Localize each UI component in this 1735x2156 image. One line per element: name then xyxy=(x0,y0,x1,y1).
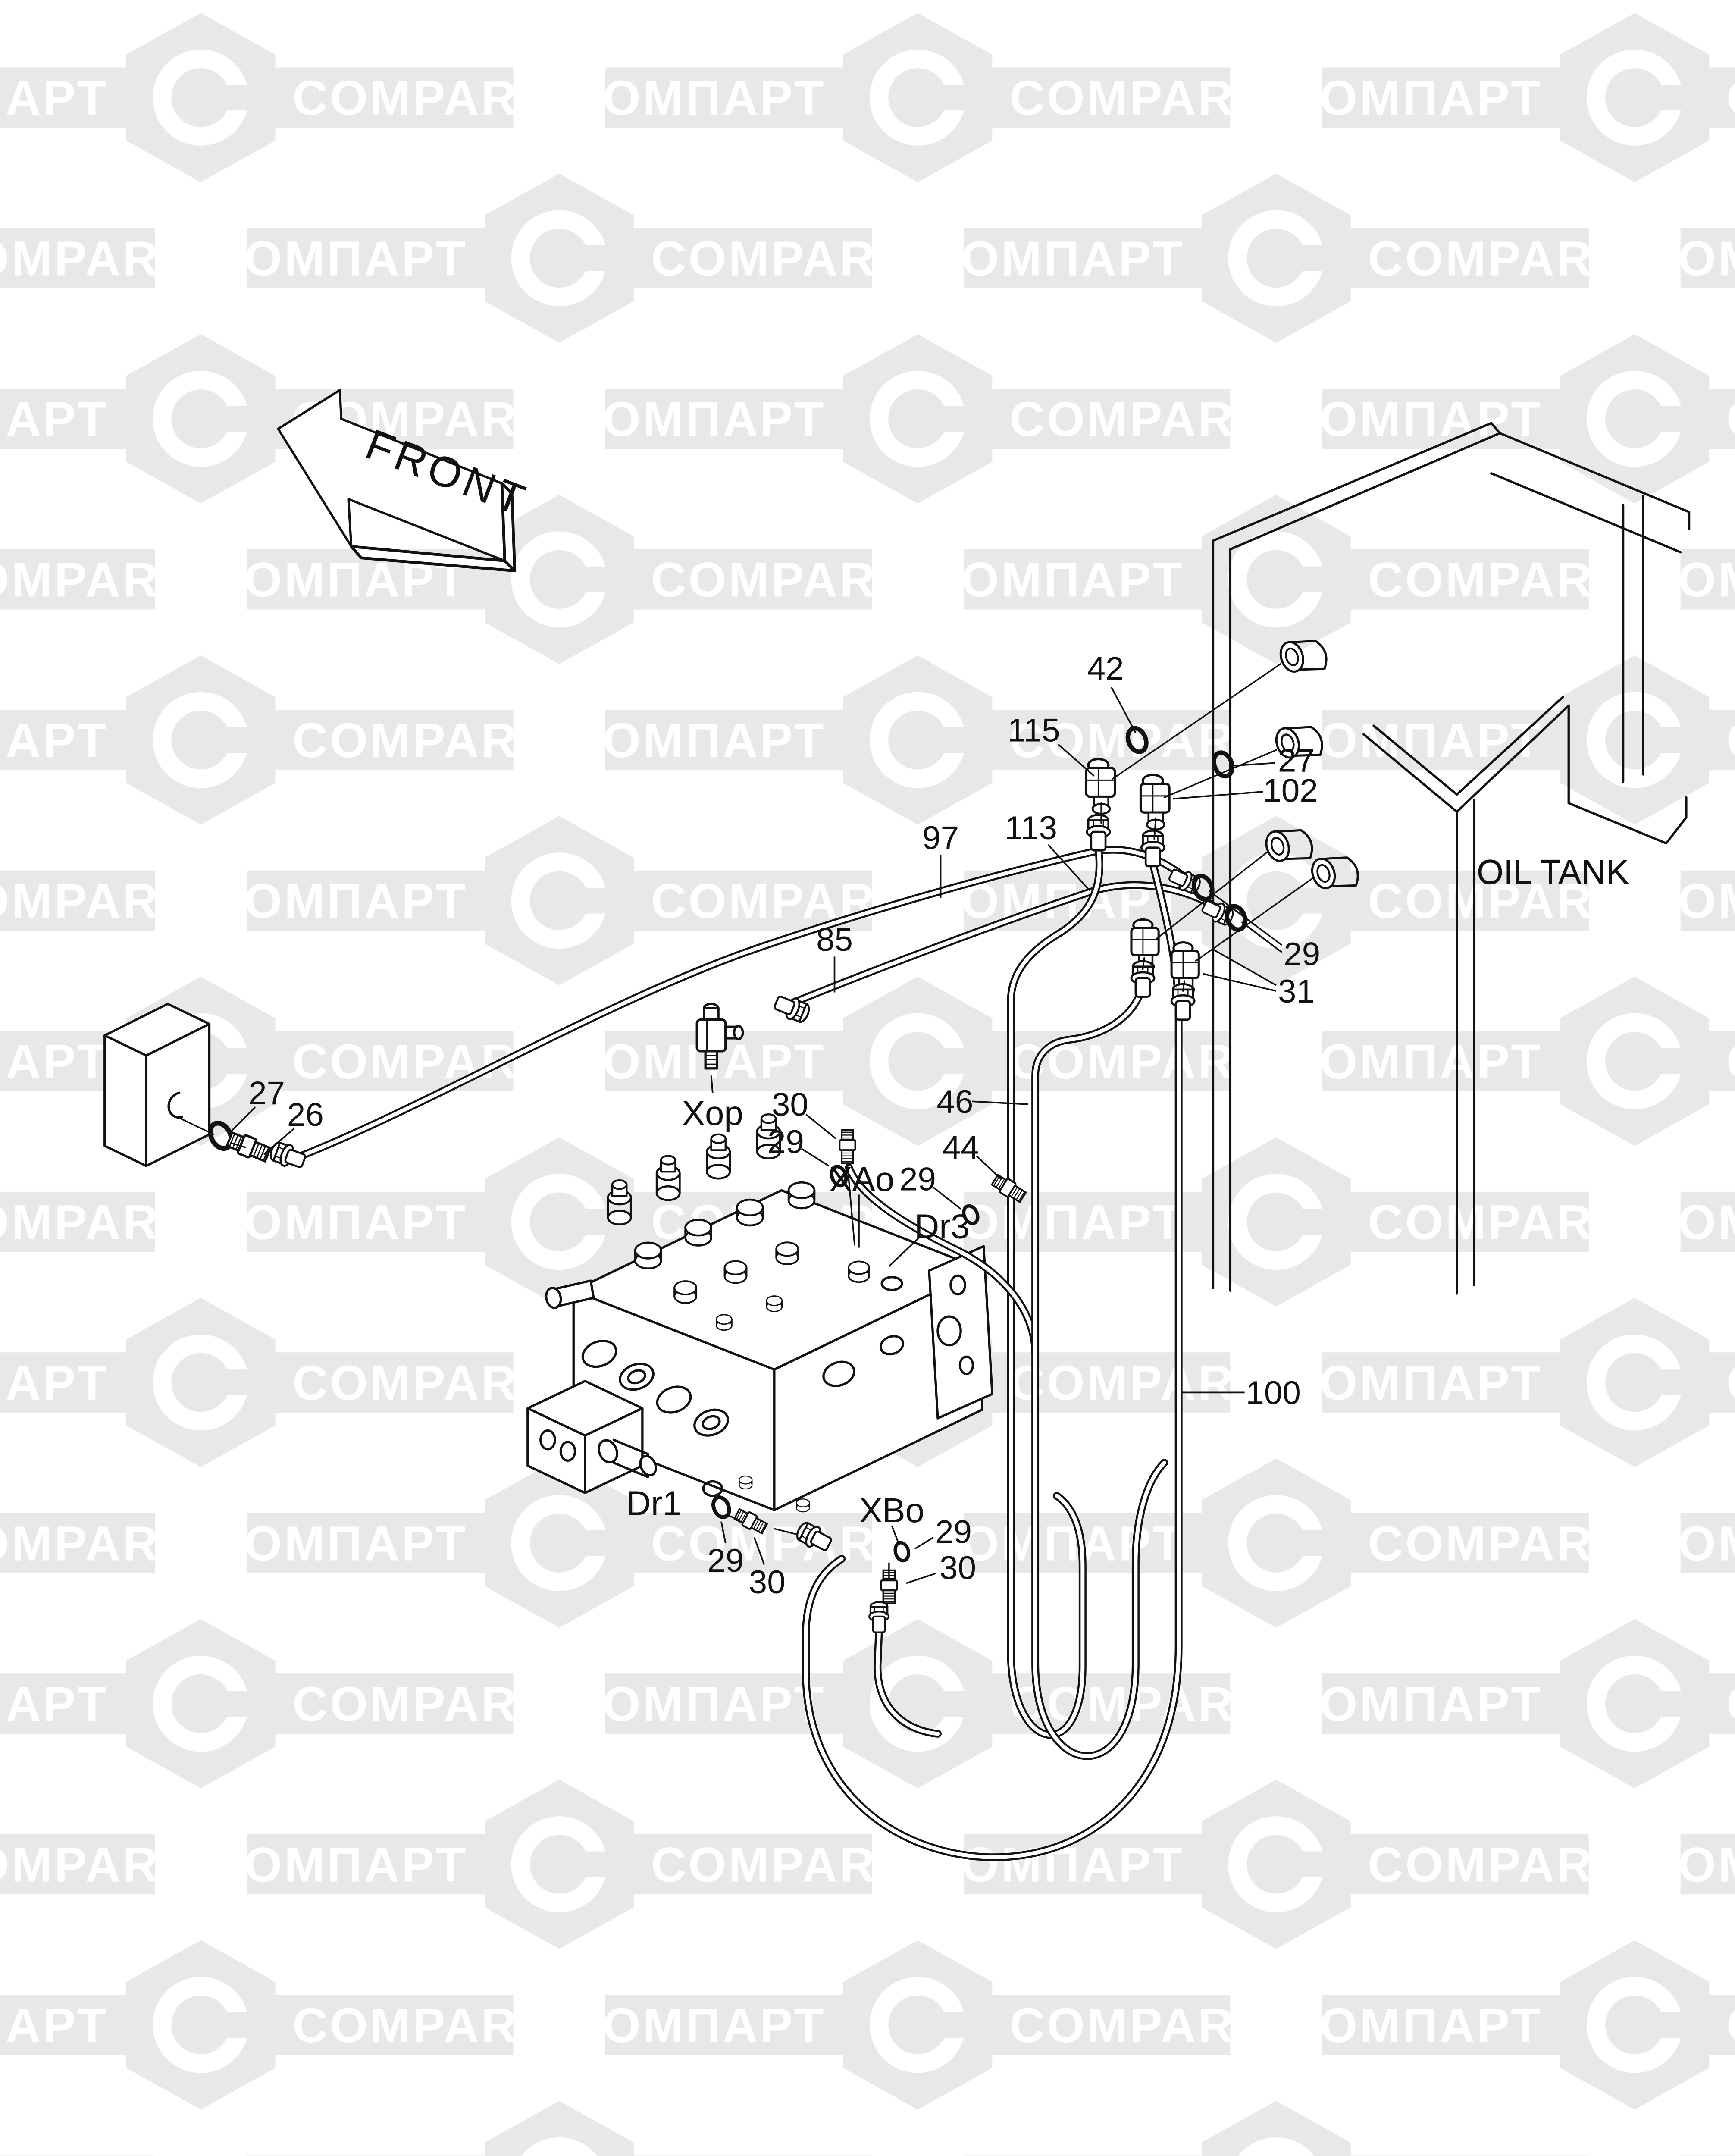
watermark-word-latin: COMPART xyxy=(1009,1034,1267,1089)
watermark-unit: КОМПАРТCOMPART xyxy=(0,1298,551,1467)
watermark-hexagon-icon xyxy=(126,13,276,182)
watermark-unit: КОМПАРТCOMPART xyxy=(212,816,909,985)
watermark-word-latin: COMPART xyxy=(0,1195,192,1250)
fitting-26 xyxy=(226,1130,272,1164)
watermark-word-cyrillic: КОМПАРТ xyxy=(1287,1356,1543,1410)
watermark-unit: КОМПАРТCOMPART xyxy=(0,1137,192,1306)
callout-label: 29 xyxy=(1284,936,1320,973)
callout-leader-line xyxy=(806,1114,836,1139)
watermark-hexagon-icon xyxy=(843,1940,992,2109)
watermark-word-cyrillic: КОМПАРТ xyxy=(1287,1034,1543,1089)
watermark-word-cyrillic: КОМПАРТ xyxy=(929,553,1184,607)
watermark-hexagon-icon xyxy=(1560,1619,1709,1788)
watermark-unit: КОМПАРТCOMPART xyxy=(0,1940,551,2109)
watermark-word-latin: COMPART xyxy=(1726,1034,1735,1089)
watermark-word-latin: COMPART xyxy=(1726,71,1735,125)
watermark-word-cyrillic: КОМПАРТ xyxy=(0,1356,109,1410)
callout-label: 30 xyxy=(749,1564,786,1601)
watermark-hexagon-icon xyxy=(485,174,634,343)
callout-label: 100 xyxy=(1246,1375,1301,1411)
watermark-word-cyrillic: КОМПАРТ xyxy=(1646,1516,1735,1570)
watermark-unit: КОМПАРТCOMPART xyxy=(212,1780,909,1949)
watermark-hexagon-icon xyxy=(843,334,992,503)
watermark-word-cyrillic: КОМПАРТ xyxy=(1646,1195,1735,1250)
watermark-unit: КОМПАРТCOMPART xyxy=(1646,1458,1735,1627)
watermark-unit: КОМПАРТCOMPART xyxy=(929,174,1626,343)
watermark-word-latin: COMPART xyxy=(651,1837,909,1892)
watermark-hexagon-icon xyxy=(126,1298,276,1467)
watermark-word-latin: COMPART xyxy=(292,1677,550,1731)
watermark-unit: КОМПАРТCOMPART xyxy=(0,2101,192,2156)
callout-label: 26 xyxy=(287,1097,324,1133)
watermark-word-latin: COMPART xyxy=(651,553,909,607)
watermark-word-latin: COMPART xyxy=(651,874,909,928)
watermark-unit: КОМПАРТCOMPART xyxy=(0,1780,192,1949)
watermark-unit: КОМПАРТCOMPART xyxy=(571,1619,1268,1788)
part-callout: 44 xyxy=(943,1129,1001,1178)
callout-label: 115 xyxy=(1008,712,1060,749)
watermark-word-cyrillic: КОМПАРТ xyxy=(1646,553,1735,607)
callout-label: 27 xyxy=(248,1075,285,1112)
watermark-hexagon-icon xyxy=(1202,1780,1351,1949)
callout-label: 29 xyxy=(767,1124,804,1160)
watermark-hexagon-icon xyxy=(485,1458,634,1627)
watermark-hexagon-icon xyxy=(485,1780,634,1949)
watermark-hexagon-icon xyxy=(1202,174,1351,343)
watermark-unit: КОМПАРТCOMPART xyxy=(571,13,1268,182)
callout-leader-line xyxy=(906,1573,936,1583)
callout-label: XAo xyxy=(829,1160,894,1198)
callout-label: 29 xyxy=(935,1514,972,1551)
watermark-unit: КОМПАРТCOMPART xyxy=(1287,977,1735,1146)
watermark-word-cyrillic: КОМПАРТ xyxy=(1287,71,1543,125)
watermark-word-latin: COMPART xyxy=(0,232,192,286)
watermark-unit: КОМПАРТCOMPART xyxy=(1646,2101,1735,2156)
watermark-unit: КОМПАРТCOMPART xyxy=(571,334,1268,503)
callout-label: 29 xyxy=(899,1161,936,1198)
callout-label: 113 xyxy=(1005,810,1057,846)
watermark-hexagon-icon xyxy=(126,334,276,503)
callout-label: 30 xyxy=(940,1550,976,1586)
watermark-hexagon-icon xyxy=(1560,13,1709,182)
callout-label: Dr1 xyxy=(626,1484,682,1522)
part-callout: Dr1 xyxy=(626,1484,682,1522)
watermark-word-cyrillic: КОМПАРТ xyxy=(212,1837,467,1892)
watermark-hexagon-icon xyxy=(1202,495,1351,664)
watermark-hexagon-icon xyxy=(843,655,992,824)
part-callout: 30 xyxy=(906,1550,976,1586)
callout-label: 102 xyxy=(1263,772,1318,809)
watermark-word-cyrillic: КОМПАРТ xyxy=(0,1677,109,1731)
watermark-hexagon-icon xyxy=(843,977,992,1146)
watermark-word-cyrillic: КОМПАРТ xyxy=(0,713,109,768)
callout-label: OIL TANK xyxy=(1477,853,1629,891)
watermark-word-latin: COMPART xyxy=(1368,1195,1626,1250)
watermark-hexagon-icon xyxy=(1560,977,1709,1146)
watermark-word-latin: COMPART xyxy=(292,1034,550,1089)
watermark-unit: КОМПАРТCOMPART xyxy=(1287,1298,1735,1467)
watermark-word-latin: COMPART xyxy=(292,713,550,768)
watermark-word-latin: COMPART xyxy=(292,1356,550,1410)
watermark-hexagon-icon xyxy=(1560,1298,1709,1467)
watermark-word-latin: COMPART xyxy=(0,553,192,607)
watermark-hexagon-icon xyxy=(1202,1137,1351,1306)
watermark-word-cyrillic: КОМПАРТ xyxy=(212,232,467,286)
watermark-unit: КОМПАРТCOMPART xyxy=(212,495,909,664)
watermark-word-cyrillic: КОМПАРТ xyxy=(1646,232,1735,286)
watermark-word-latin: COMPART xyxy=(1726,392,1735,446)
watermark-word-latin: COMPART xyxy=(651,232,909,286)
watermark-word-cyrillic: КОМПАРТ xyxy=(0,71,109,125)
watermark-unit: КОМПАРТCOMPART xyxy=(1287,655,1735,824)
watermark-word-latin: COMPART xyxy=(1009,71,1267,125)
watermark-unit: КОМПАРТCOMPART xyxy=(212,174,909,343)
watermark-word-latin: COMPART xyxy=(0,874,192,928)
watermark-unit: КОМПАРТCOMPART xyxy=(0,977,551,1146)
watermark-unit: КОМПАРТCOMPART xyxy=(1646,174,1735,343)
watermark-word-cyrillic: КОМПАРТ xyxy=(571,1677,826,1731)
watermark-word-cyrillic: КОМПАРТ xyxy=(212,1516,467,1570)
part-callout: 29 xyxy=(767,1124,829,1166)
watermark-unit: КОМПАРТCOMPART xyxy=(0,1458,192,1627)
hose-113 xyxy=(1011,849,1099,1735)
watermark-unit: КОМПАРТCOMPART xyxy=(929,2101,1626,2156)
watermark-unit: КОМПАРТCOMPART xyxy=(1646,495,1735,664)
watermark-word-latin: COMPART xyxy=(1368,1516,1626,1570)
watermark-word-cyrillic: КОМПАРТ xyxy=(0,1998,109,2053)
watermark-word-cyrillic: КОМПАРТ xyxy=(929,232,1184,286)
pilot-box xyxy=(105,1004,210,1166)
watermark-hexagon-icon xyxy=(126,1619,276,1788)
callout-label: Xop xyxy=(682,1094,743,1132)
watermark-word-latin: COMPART xyxy=(1009,1356,1267,1410)
watermark-word-cyrillic: КОМПАРТ xyxy=(1287,392,1543,446)
watermark-unit: КОМПАРТCOMPART xyxy=(0,174,192,343)
watermark-word-latin: COMPART xyxy=(1726,713,1735,768)
watermark-hexagon-icon xyxy=(126,1940,276,2109)
watermark-word-latin: COMPART xyxy=(0,1837,192,1892)
watermark-word-cyrillic: КОМПАРТ xyxy=(0,392,109,446)
callout-label: 42 xyxy=(1087,651,1124,687)
watermark-word-latin: COMPART xyxy=(1726,1677,1735,1731)
watermark-hexagon-icon xyxy=(1560,1940,1709,2109)
watermark-word-latin: COMPART xyxy=(0,1516,192,1570)
watermark-hexagon-icon xyxy=(843,13,992,182)
parts-diagram-page: КОМПАРТCOMPARTКОМПАРТCOMPARTКОМПАРТCOMPA… xyxy=(0,0,1735,2156)
watermark-unit: КОМПАРТCOMPART xyxy=(0,13,551,182)
fitting-30-top xyxy=(839,1130,855,1163)
watermark-word-latin: COMPART xyxy=(1009,1998,1267,2053)
part-callout: 102 xyxy=(1173,772,1318,809)
callout-leader-line xyxy=(1173,792,1263,799)
watermark-unit: КОМПАРТCOMPART xyxy=(1287,1940,1735,2109)
watermark-unit: КОМПАРТCOMPART xyxy=(929,1780,1626,1949)
watermark-word-cyrillic: КОМПАРТ xyxy=(571,392,826,446)
watermark-hexagon-icon xyxy=(843,1619,992,1788)
callout-label: 31 xyxy=(1278,973,1315,1010)
part-callout: OIL TANK xyxy=(1477,853,1629,891)
watermark-word-cyrillic: КОМПАРТ xyxy=(0,1034,109,1089)
watermark-word-latin: COMPART xyxy=(1009,392,1267,446)
watermark-hexagon-icon xyxy=(126,655,276,824)
callout-label: 46 xyxy=(936,1084,973,1120)
watermark-word-latin: COMPART xyxy=(292,71,550,125)
callout-label: 30 xyxy=(772,1087,808,1123)
callout-leader-line xyxy=(977,1156,1001,1179)
watermark-unit: КОМПАРТCOMPART xyxy=(212,2101,909,2156)
callout-label: Dr3 xyxy=(914,1207,970,1246)
watermark-word-latin: COMPART xyxy=(1726,1998,1735,2053)
watermark-unit: КОМПАРТCOMPART xyxy=(1646,1780,1735,1949)
watermark-unit: КОМПАРТCOMPART xyxy=(1287,1619,1735,1788)
watermark-word-cyrillic: КОМПАРТ xyxy=(1287,1677,1543,1731)
watermark-unit: КОМПАРТCOMPART xyxy=(1646,1137,1735,1306)
watermark-unit: КОМПАРТCOMPART xyxy=(1287,13,1735,182)
watermark-word-cyrillic: КОМПАРТ xyxy=(571,713,826,768)
callout-label: 29 xyxy=(707,1542,744,1579)
watermark-unit: КОМПАРТCOMPART xyxy=(0,655,551,824)
callout-label: 97 xyxy=(922,820,959,856)
watermark-hexagon-icon xyxy=(1560,334,1709,503)
watermark-word-cyrillic: КОМПАРТ xyxy=(1646,874,1735,928)
watermark-unit: КОМПАРТCOMPART xyxy=(1287,334,1735,503)
watermark-unit: КОМПАРТCOMPART xyxy=(929,495,1626,664)
watermark-unit: КОМПАРТCOMPART xyxy=(0,816,192,985)
fittings xyxy=(206,726,1249,1633)
watermark-word-cyrillic: КОМПАРТ xyxy=(212,1195,467,1250)
callout-label: 85 xyxy=(816,921,853,958)
watermark-word-cyrillic: КОМПАРТ xyxy=(1646,1837,1735,1892)
watermark-hexagon-icon xyxy=(1202,1458,1351,1627)
watermark-word-latin: COMPART xyxy=(1368,1837,1626,1892)
watermark-word-cyrillic: КОМПАРТ xyxy=(212,874,467,928)
watermark-word-cyrillic: КОМПАРТ xyxy=(571,71,826,125)
watermark-word-latin: COMPART xyxy=(1368,232,1626,286)
watermark-unit: КОМПАРТCOMPART xyxy=(571,1940,1268,2109)
watermark-word-latin: COMPART xyxy=(1726,1356,1735,1410)
callout-label: XBo xyxy=(859,1491,924,1529)
callout-label: 44 xyxy=(943,1129,979,1166)
callout-leader-line xyxy=(802,1149,829,1166)
watermark-unit: КОМПАРТCOMPART xyxy=(571,977,1268,1146)
watermark-hexagon-icon xyxy=(485,816,634,985)
watermark-word-cyrillic: КОМПАРТ xyxy=(1287,1998,1543,2053)
watermark-word-cyrillic: КОМПАРТ xyxy=(571,1998,826,2053)
watermark-word-latin: COMPART xyxy=(292,1998,550,2053)
watermark-word-latin: COMPART xyxy=(1368,553,1626,607)
watermark-unit: КОМПАРТCOMPART xyxy=(0,1619,551,1788)
watermark-unit: КОМПАРТCOMPART xyxy=(0,495,192,664)
